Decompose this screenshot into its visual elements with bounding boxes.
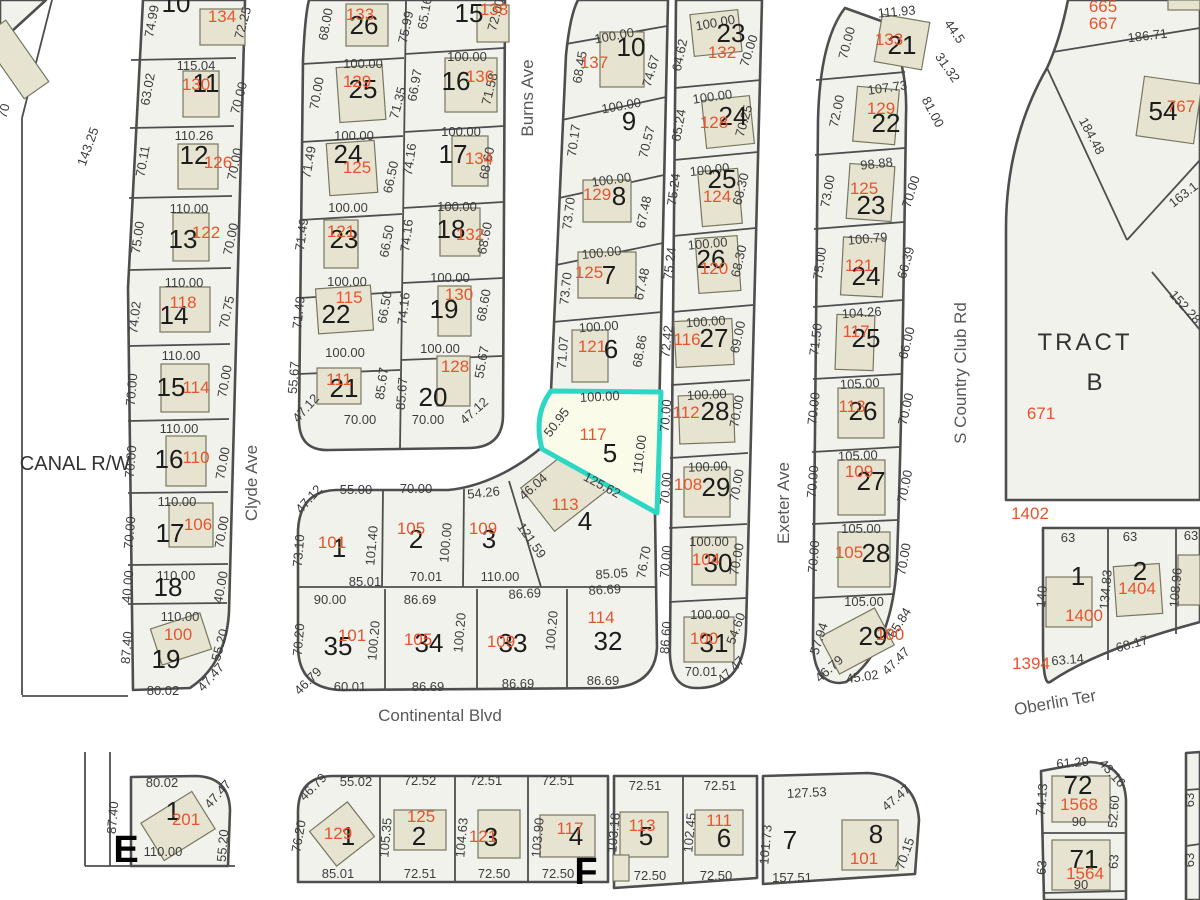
building-footprint [0,20,49,99]
parcel-boundary-line [1186,789,1200,790]
dimension-label: 40.00 [119,570,137,604]
dimension-label: 100.00 [441,124,481,139]
dimension-label: 63 [1184,528,1198,543]
parcel-id-label: 132 [456,225,484,244]
dimension-label: 55.20 [214,829,232,863]
dimension-label: 71.07 [554,336,572,370]
parcel-boundary-line [382,490,383,587]
parcel-id-label: 129 [343,72,371,91]
building-footprint [1168,0,1200,10]
dimension-label: 72.50 [542,866,575,881]
lot-number-label: 10 [162,0,191,18]
dimension-label: 86.69 [412,679,445,694]
lot-number-label: 1 [1071,561,1085,591]
street-name-label: Oberlin Ter [1013,686,1098,719]
lot-number-label: 17 [156,518,185,548]
parcel-id-label: 129 [324,824,352,843]
dimension-label: 70.00 [805,540,823,574]
parcel-id-label: 133 [346,5,374,24]
dimension-label: 105.00 [844,594,884,609]
dimension-label: 63 [1123,529,1137,544]
parcel-id-label: 110 [182,448,209,467]
dimension-label: 85.01 [349,574,382,589]
lot-number-label: 9 [622,106,636,136]
parcel-boundary-line [463,489,464,587]
dimension-label: 127.53 [787,784,827,801]
lot-number-label: 32 [594,626,623,656]
parcel-id-label: 136 [466,67,494,86]
lot-number-label: 17 [439,139,468,169]
dimension-label: 72.51 [542,773,575,788]
dimension-label: 111.93 [877,2,916,20]
street-name-label: Continental Blvd [378,706,502,725]
area-name-label: TRACT [1038,329,1133,356]
dimension-label: 70 [0,102,13,120]
dimension-label: 55.67 [285,361,303,395]
dimension-label: 100.00 [343,56,383,71]
parcel-id-label: 671 [1027,404,1055,423]
dimension-label: 70.01 [685,664,718,679]
dimension-label: 81.00 [919,94,948,130]
dimension-label: 86.69 [508,585,541,602]
parcel-map-viewport[interactable]: 74.9972.25115.0463.0270.00110.2670.1170.… [0,0,1200,900]
dimension-label: 100.00 [325,345,365,360]
parcel-id-label: 124 [703,187,731,206]
dimension-label: 110.00 [165,275,204,290]
parcel-id-label: 767 [1167,97,1195,116]
lot-number-label: 29 [702,472,731,502]
dimension-label: 63 [1061,530,1075,545]
parcel-id-label: 114 [182,378,209,397]
dimension-label: 45.02 [845,667,879,686]
parcel-id-label: 117 [842,322,869,341]
dimension-label: 80.02 [147,683,180,698]
parcel-id-label: 137 [580,53,608,72]
parcel-id-label: 125 [407,807,435,826]
parcel-id-label: 1404 [1118,579,1156,598]
parcel-id-label: 1564 [1066,864,1104,883]
dimension-label: 86.69 [588,581,621,598]
parcel-id-label: 121 [327,222,355,241]
parcel-id-label: 113 [628,816,655,835]
dimension-label: 110.00 [170,201,209,216]
parcel-id-label: 121 [578,337,606,356]
area-name-label: B [1086,369,1105,396]
dimension-label: 110.00 [158,494,197,509]
dimension-label: 86.60 [657,621,675,655]
dimension-label: 70.20 [290,623,308,657]
parcel-id-label: 117 [556,819,583,838]
lot-number-label: 27 [700,323,729,353]
parcel-id-label: 128 [441,357,469,376]
parcel-id-label: 126 [204,153,232,172]
dimension-label: 72.50 [478,866,511,881]
parcel-id-label: 100 [876,625,904,644]
lot-number-label: 18 [154,572,183,602]
dimension-label: 110.00 [161,609,200,624]
lot-number-label: 16 [155,444,184,474]
lot-number-label: 8 [612,181,626,211]
dimension-label: 70.00 [412,412,445,427]
dimension-label: 72.52 [404,773,437,788]
dimension-label: 86.69 [587,673,620,688]
dimension-label: 31.32 [932,50,963,85]
parcel-id-label: 125 [575,263,603,282]
lot-number-label: 4 [578,506,592,536]
parcel-boundary-line [128,492,228,493]
parcel-id-label: 108 [674,475,702,494]
lot-number-label: 28 [701,396,730,426]
dimension-label: 55.00 [340,482,373,497]
parcel-id-label: 201 [172,810,200,829]
dimension-label: 72.51 [404,866,437,881]
parcel-id-label: 1402 [1011,504,1049,523]
dimension-label: 70.00 [400,481,433,496]
parcel-id-label: 138 [480,0,508,19]
parcel-block[interactable] [1006,0,1200,500]
dimension-label: 70.01 [410,569,443,584]
section-letter-label: F [574,851,597,893]
dimension-label: 104.26 [841,304,882,322]
dimension-label: 100.00 [327,274,367,289]
dimension-label: 70.00 [121,516,139,550]
lot-number-label: 28 [862,538,891,568]
dimension-label: 143.25 [74,125,102,167]
dimension-label: 60.01 [334,679,367,694]
parcel-id-label: 1400 [1065,606,1103,625]
dimension-label: 72.50 [700,868,733,883]
parcel-id-label: 109 [845,462,873,481]
parcel-id-label: 113 [838,397,865,416]
dimension-label: 100.00 [420,341,460,356]
parcel-id-label: 100 [164,625,192,644]
dimension-label: 70.00 [657,472,675,506]
parcel-id-label: 132 [708,43,736,62]
lot-number-label: 19 [152,644,181,674]
dimension-label: 100.00 [328,200,368,215]
dimension-label: 85.67 [393,377,411,411]
dimension-label: 70.00 [123,373,141,407]
parcel-id-label: 105 [404,630,432,649]
parcel-map-canvas[interactable]: 74.9972.25115.0463.0270.00110.2670.1170.… [0,0,1200,900]
parcel-id-label: 111 [326,370,352,389]
street-name-label: Clyde Ave [242,445,261,521]
dimension-label: 105.00 [840,375,880,392]
dimension-label: 70.00 [344,412,377,427]
parcel-id-label: 122 [192,223,220,242]
parcel-id-label: 129 [583,185,611,204]
dimension-label: 72.51 [629,778,662,793]
dimension-label: 86.69 [404,592,437,607]
parcel-id-label: 101 [338,626,366,645]
lot-number-label: 20 [419,382,448,412]
dimension-label: 100.00 [690,607,730,622]
dimension-label: 70.00 [804,465,822,499]
dimension-label: 100.00 [689,534,729,549]
building-footprint [613,855,629,881]
parcel-id-label: 114 [587,608,614,627]
dimension-label: 61.29 [1056,754,1090,772]
dimension-label: 100.00 [447,49,487,64]
dimension-label: 73.10 [290,534,308,568]
parcel-boundary-line [128,564,228,565]
dimension-label: 63 [1182,793,1197,807]
parcel-id-label: 101 [318,533,346,552]
parcel-id-label: 109 [487,632,515,651]
dimension-label: 63 [1182,853,1197,867]
dimension-label: 72.51 [470,773,503,788]
dimension-label: 63.14 [1051,651,1085,669]
parcel-id-label: 105 [397,519,425,538]
dimension-label: 140 [1033,585,1050,608]
dimension-label: 110.00 [160,421,199,436]
parcel-id-label: 130 [445,285,473,304]
parcel-id-label: 115 [335,288,362,307]
dimension-label: 87.40 [118,631,136,665]
dimension-label: 90.00 [314,592,347,607]
parcel-id-label: 104 [692,550,720,569]
dimension-label: 74.13 [1033,783,1051,817]
parcel-id-label: 106 [184,515,212,534]
dimension-label: 157.51 [772,870,812,885]
parcel-id-label: 134 [208,7,236,26]
parcel-id-label: 1394 [1012,654,1050,673]
dimension-label: 85.01 [322,866,355,881]
parcel-id-label: 101 [850,849,878,868]
street-name-label: Exeter Ave [774,462,793,544]
parcel-id-label: 125 [343,158,371,177]
parcel-id-label: 109 [469,519,497,538]
dimension-label: 105.00 [841,521,881,536]
lot-number-label: 10 [617,32,646,62]
parcel-id-label: 111 [706,811,732,830]
parcel-id-label: 100 [690,629,718,648]
parcel-id-label: 120 [700,259,728,278]
lot-number-label: 7 [602,260,616,290]
parcel-id-label: 1568 [1060,795,1098,814]
parcel-id-label: 105 [835,543,863,562]
dimension-label: 72.51 [704,778,737,793]
dimension-label: 100.00 [437,199,477,214]
dimension-label: 110.00 [144,844,183,859]
dimension-label: 63 [1105,854,1121,870]
dimension-label: 72.50 [634,868,667,883]
parcel-block[interactable] [1186,752,1200,900]
dimension-label: 100.00 [430,270,470,285]
dimension-label: 90 [1072,814,1086,829]
parcel-id-label: 129 [867,99,895,118]
lot-number-label: 15 [157,372,186,402]
dimension-label: 55.02 [340,774,373,789]
parcel-id-label: 113 [551,495,578,514]
dimension-label: 70.00 [657,545,675,579]
parcel-id-label: 125 [850,179,878,198]
lot-number-label: 8 [869,819,883,849]
dimension-label: 86.69 [502,676,535,691]
parcel-id-label: 121 [469,827,497,846]
parcel-id-label: 133 [875,30,903,49]
area-name-label: CANAL R/W [20,453,131,475]
dimension-label: 80.02 [146,775,179,790]
dimension-label: 52.60 [1105,795,1123,829]
parcel-id-label: 130 [182,75,210,94]
dimension-label: 100.00 [580,388,620,405]
parcel-id-label: 112 [672,403,699,422]
parcel-id-label: 118 [169,293,196,312]
parcel-id-label: 116 [673,330,700,349]
street-name-label: Burns Ave [518,59,537,136]
parcel-id-label: 117 [579,425,606,444]
lot-number-label: 7 [783,825,797,855]
dimension-label: 63 [1033,860,1049,876]
parcel-id-label: 134 [465,149,493,168]
dimension-label: 85.05 [595,565,629,582]
dimension-label: 44.5 [941,17,968,46]
dimension-label: 110.00 [162,348,201,363]
parcel-id-label: 667 [1089,14,1117,33]
parcel-id-label: 121 [845,256,873,275]
dimension-label: 110.00 [481,569,520,584]
section-letter-label: E [113,829,138,871]
dimension-label: 100.00 [578,318,619,336]
parcel-id-label: 128 [700,113,728,132]
street-name-label: S Country Club Rd [951,302,970,444]
